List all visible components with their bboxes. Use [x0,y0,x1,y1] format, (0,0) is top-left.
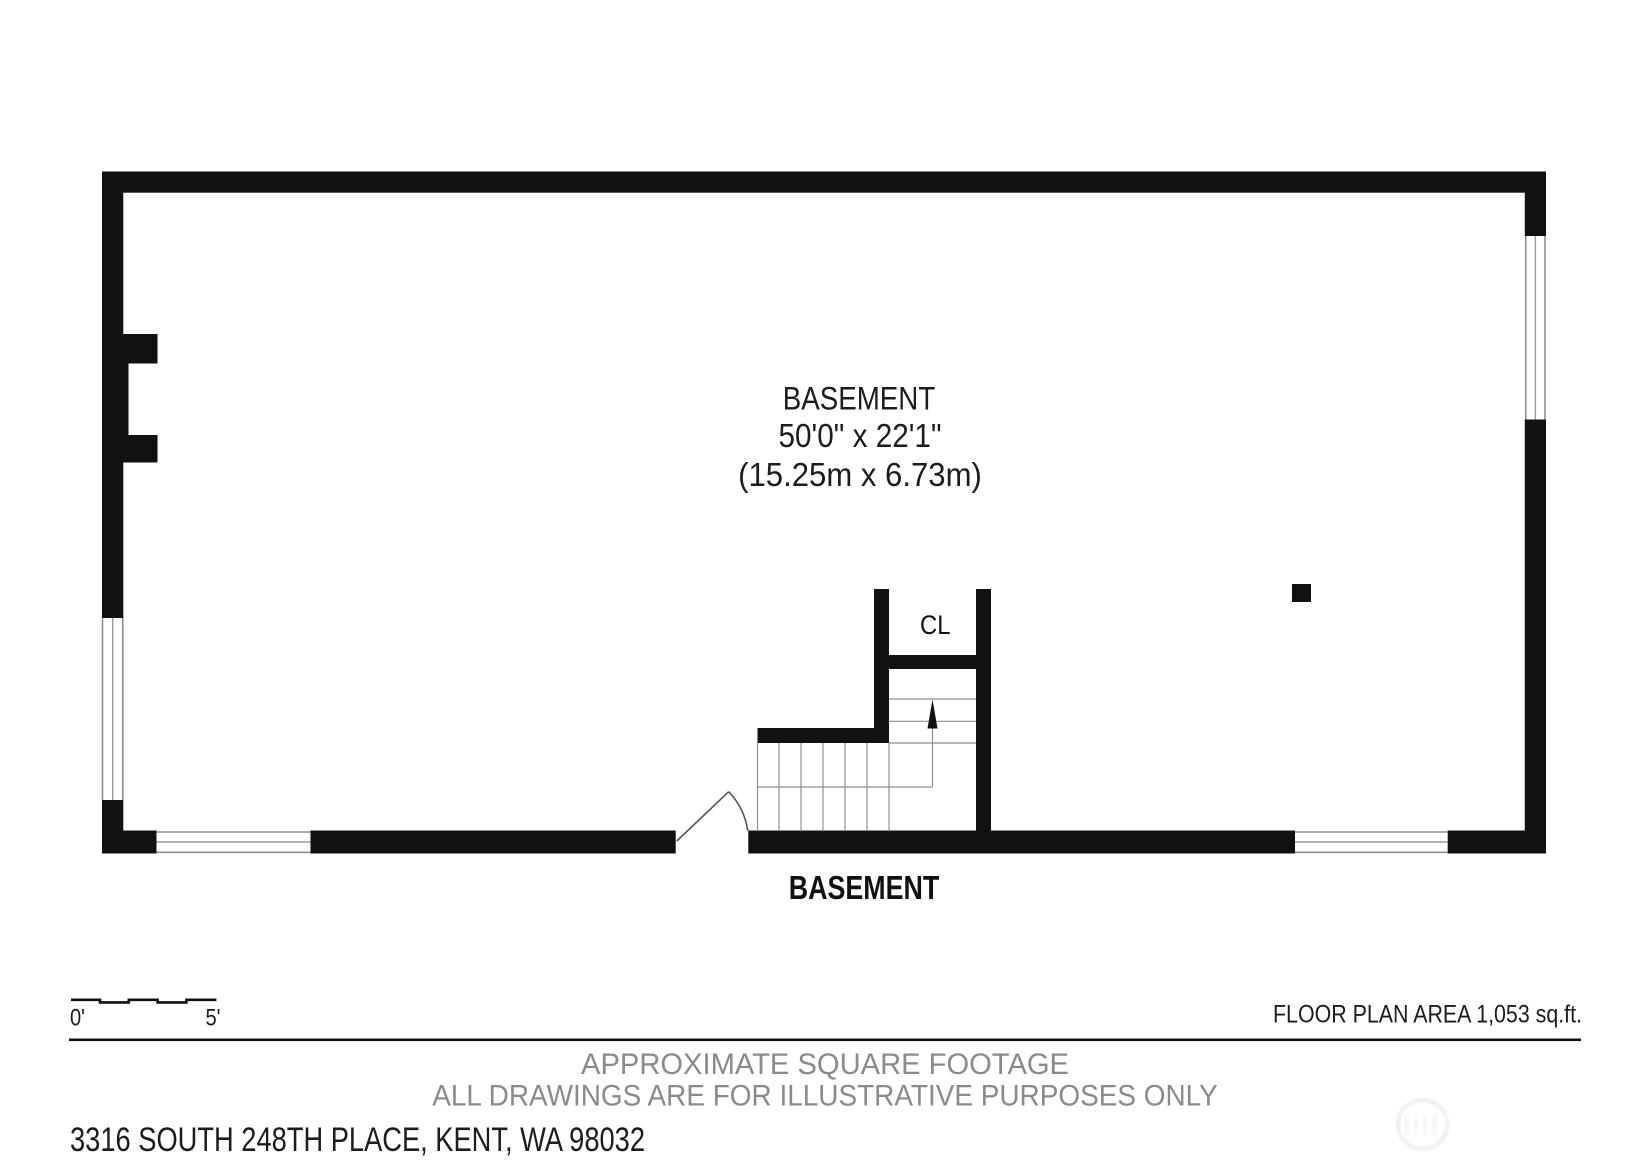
svg-text:APPROXIMATE SQUARE FOOTAGE: APPROXIMATE SQUARE FOOTAGE [581,1048,1069,1081]
svg-text:FLOOR PLAN AREA 1,053 sq.ft.: FLOOR PLAN AREA 1,053 sq.ft. [1273,1001,1582,1029]
svg-text:5': 5' [206,1004,221,1031]
svg-text:BASEMENT: BASEMENT [783,381,936,417]
svg-text:CL: CL [920,610,951,640]
svg-text:3316 SOUTH 248TH PLACE, KENT,: 3316 SOUTH 248TH PLACE, KENT, WA 98032 [70,1121,645,1159]
svg-text:0': 0' [70,1004,85,1031]
svg-text:ALL DRAWINGS ARE FOR ILLUSTRAT: ALL DRAWINGS ARE FOR ILLUSTRATIVE PURPOS… [432,1080,1218,1113]
svg-text:(15.25m x 6.73m): (15.25m x 6.73m) [738,456,982,493]
svg-text:BASEMENT: BASEMENT [789,869,940,906]
svg-text:50'0" x 22'1": 50'0" x 22'1" [779,417,942,454]
